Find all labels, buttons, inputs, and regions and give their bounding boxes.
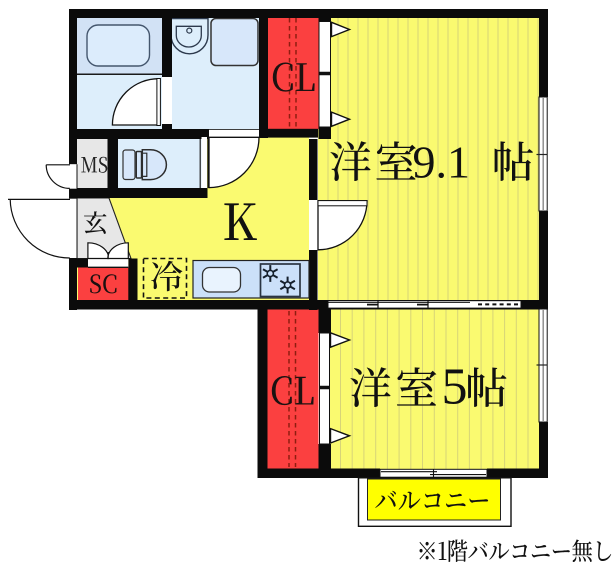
svg-text:5: 5 bbox=[442, 359, 468, 416]
svg-text:9.1: 9.1 bbox=[413, 137, 471, 188]
